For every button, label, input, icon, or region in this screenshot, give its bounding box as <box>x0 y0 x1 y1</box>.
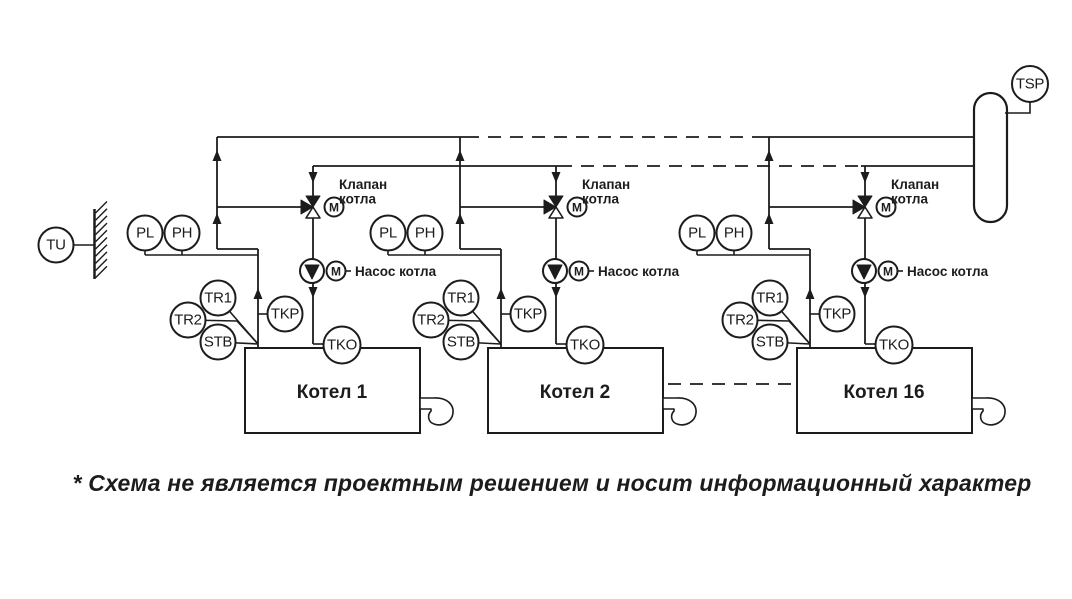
burner-icon <box>972 398 1005 425</box>
pump-caption: Насос котла <box>907 264 989 279</box>
flow-arrow-up <box>765 150 774 161</box>
sensor-pl-label: PL <box>688 225 706 242</box>
flow-arrow-up <box>456 213 465 224</box>
pump-caption: Насос котла <box>355 264 437 279</box>
valve-caption-line2: котла <box>339 192 376 207</box>
hydraulic-separator-group: TSP <box>974 66 1048 222</box>
burner-icon <box>420 398 453 425</box>
sensor-tkp-label: TKP <box>271 306 300 323</box>
sensor-ph-label: PH <box>724 225 744 242</box>
flow-arrow-down <box>861 172 870 183</box>
three-way-valve: M <box>544 196 587 218</box>
flow-arrow-down <box>861 287 870 298</box>
pump-actuator-label: M <box>574 265 584 279</box>
sensor-pl-label: PL <box>379 225 397 242</box>
sensor-tr2-label: TR2 <box>417 312 444 329</box>
collector-sensor-link <box>1005 102 1030 113</box>
three-way-valve: M <box>853 196 896 218</box>
sensor-tr1-label: TR1 <box>204 290 231 307</box>
sensor-tr2-label: TR2 <box>726 312 753 329</box>
burner-icon <box>663 398 696 425</box>
sensor-stb-label: STB <box>756 334 785 351</box>
sensor-stb-label: STB <box>447 334 476 351</box>
valve-caption-line1: Клапан <box>339 177 387 192</box>
flow-arrow-down <box>309 172 318 183</box>
pump-actuator-label: M <box>883 265 893 279</box>
flow-arrow-down <box>309 287 318 298</box>
boiler-pump: M <box>543 259 594 283</box>
flow-arrow-up <box>456 150 465 161</box>
boiler-name: Котел 1 <box>297 382 368 403</box>
flow-arrow-down <box>552 172 561 183</box>
valve-actuator-label: M <box>572 201 582 215</box>
sensor-tkp-label: TKP <box>823 306 852 323</box>
flow-arrow-up <box>765 213 774 224</box>
valve-actuator-label: M <box>881 201 891 215</box>
flow-arrow-up <box>254 288 263 299</box>
flow-arrow-up <box>497 288 506 299</box>
wall-hatching <box>96 202 108 278</box>
sensor-ph-label: PH <box>172 225 192 242</box>
sensor-tko-label: TKO <box>327 337 357 354</box>
valve-caption-line1: Клапан <box>891 177 939 192</box>
three-way-valve: M <box>301 196 344 218</box>
pump-caption: Насос котла <box>598 264 680 279</box>
valve-caption-line2: котла <box>891 192 928 207</box>
boiler-cascade-schematic: TU TSP Котел 1 <box>0 0 1072 599</box>
sensor-tr1-label: TR1 <box>447 290 474 307</box>
boiler-pump: M <box>300 259 351 283</box>
boiler-pump: M <box>852 259 903 283</box>
sensor-tr1-label: TR1 <box>756 290 783 307</box>
boiler-name: Котел 2 <box>540 382 611 403</box>
collector-temp-sensor-label: TSP <box>1016 76 1045 93</box>
sensor-pl-label: PL <box>136 225 154 242</box>
sensor-tr2-label: TR2 <box>174 312 201 329</box>
valve-actuator-label: M <box>329 201 339 215</box>
outdoor-sensor-group: TU <box>39 202 108 280</box>
valve-caption-line1: Клапан <box>582 177 630 192</box>
sensor-tko-label: TKO <box>879 337 909 354</box>
outdoor-temp-sensor-label: TU <box>46 237 65 254</box>
sensor-stb-label: STB <box>204 334 233 351</box>
boiler-unit-16: Котел 16 M Клапан котла M Насос котла PL… <box>680 137 1006 433</box>
flow-arrow-down <box>552 287 561 298</box>
flow-arrow-up <box>213 213 222 224</box>
boiler-unit-1: Котел 1 M Клапан котла M Насос котла PL … <box>128 137 454 433</box>
boiler-name: Котел 16 <box>843 382 924 403</box>
sensor-tkp-label: TKP <box>514 306 543 323</box>
sensor-tko-label: TKO <box>570 337 600 354</box>
disclaimer-footnote: * Схема не является проектным решением и… <box>73 470 1032 496</box>
flow-arrow-up <box>213 150 222 161</box>
pump-actuator-label: M <box>331 265 341 279</box>
sensor-ph-label: PH <box>415 225 435 242</box>
hydraulic-separator <box>974 93 1007 222</box>
valve-caption-line2: котла <box>582 192 619 207</box>
flow-arrow-up <box>806 288 815 299</box>
